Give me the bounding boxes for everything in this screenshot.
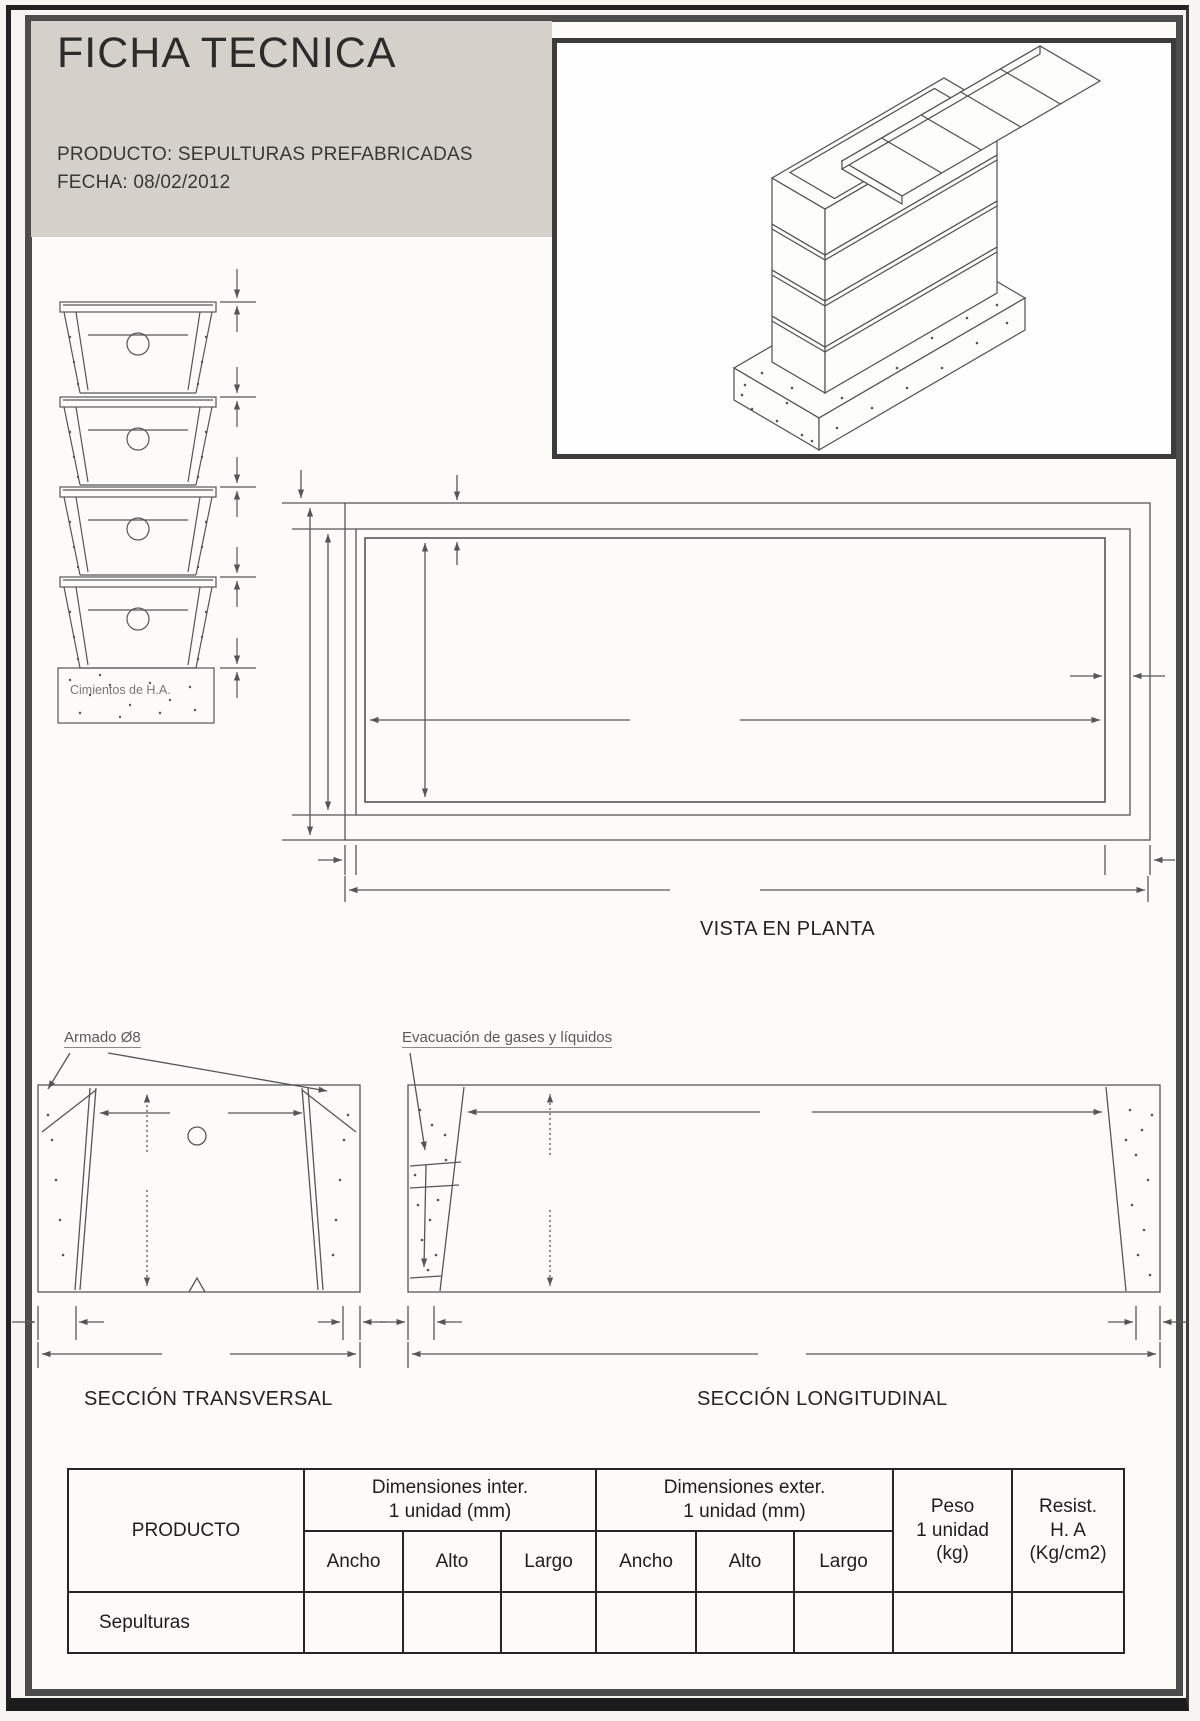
col-header-resist: Resist. H. A (Kg/cm2)	[1012, 1469, 1124, 1592]
col-header-dim-inter: Dimensiones inter. 1 unidad (mm)	[304, 1469, 596, 1531]
plan-dimensions	[282, 470, 1175, 902]
cell-peso	[893, 1592, 1012, 1653]
cell-resist	[1012, 1592, 1124, 1653]
elevation-dimension-ticks	[220, 269, 256, 698]
page-title: FICHA TECNICA	[57, 29, 397, 78]
cell-largo-inter	[501, 1592, 596, 1653]
isometric-drawing	[557, 43, 1171, 454]
cell-ancho-inter	[304, 1592, 403, 1653]
peso-line1: Peso	[894, 1495, 1011, 1519]
product-line: PRODUCTO: SEPULTURAS PREFABRICADAS	[57, 144, 473, 166]
plan-view-caption: VISTA EN PLANTA	[700, 918, 875, 941]
dim-inter-line2: 1 unidad (mm)	[305, 1500, 595, 1524]
section-longitudinal	[380, 1053, 1188, 1368]
transversal-caption: SECCIÓN TRANSVERSAL	[84, 1388, 333, 1411]
col-header-alto-inter: Alto	[403, 1531, 501, 1592]
cell-largo-exter	[794, 1592, 893, 1653]
col-header-ancho-exter: Ancho	[596, 1531, 696, 1592]
isometric-drawing-box	[552, 38, 1176, 459]
dim-exter-line1: Dimensiones exter.	[597, 1476, 892, 1500]
col-header-largo-exter: Largo	[794, 1531, 893, 1592]
longitudinal-caption: SECCIÓN LONGITUDINAL	[697, 1388, 947, 1411]
section-transversal	[12, 1053, 386, 1368]
foundation-label: Cimientos de H.A.	[70, 683, 171, 697]
col-header-alto-exter: Alto	[696, 1531, 794, 1592]
resist-line1: Resist.	[1013, 1495, 1123, 1519]
cell-alto-exter	[696, 1592, 794, 1653]
elevation-drawing	[30, 255, 265, 735]
sections-drawing	[0, 1040, 1200, 1375]
col-header-producto: PRODUCTO	[68, 1469, 304, 1592]
spec-table: PRODUCTO Dimensiones inter. 1 unidad (mm…	[67, 1468, 1125, 1654]
iso-group	[734, 46, 1100, 450]
plan-view-drawing	[270, 450, 1170, 915]
col-header-dim-exter: Dimensiones exter. 1 unidad (mm)	[596, 1469, 893, 1531]
table-row: Sepulturas	[68, 1592, 1124, 1653]
row-product-name: Sepulturas	[68, 1592, 304, 1653]
peso-line3: (kg)	[894, 1542, 1011, 1566]
cell-alto-inter	[403, 1592, 501, 1653]
resist-line3: (Kg/cm2)	[1013, 1542, 1123, 1566]
cell-ancho-exter	[596, 1592, 696, 1653]
dim-exter-line2: 1 unidad (mm)	[597, 1500, 892, 1524]
col-header-largo-inter: Largo	[501, 1531, 596, 1592]
date-line: FECHA: 08/02/2012	[57, 172, 230, 194]
document-page: FICHA TECNICA PRODUCTO: SEPULTURAS PREFA…	[0, 0, 1200, 1721]
col-header-ancho-inter: Ancho	[304, 1531, 403, 1592]
page: { "header": { "title": "FICHA TECNICA", …	[0, 0, 1200, 1721]
plan-rectangles	[345, 503, 1150, 840]
col-header-peso: Peso 1 unidad (kg)	[893, 1469, 1012, 1592]
dim-inter-line1: Dimensiones inter.	[305, 1476, 595, 1500]
elevation-units	[58, 269, 256, 723]
peso-line2: 1 unidad	[894, 1519, 1011, 1543]
resist-line2: H. A	[1013, 1519, 1123, 1543]
header-box: FICHA TECNICA PRODUCTO: SEPULTURAS PREFA…	[31, 21, 552, 237]
